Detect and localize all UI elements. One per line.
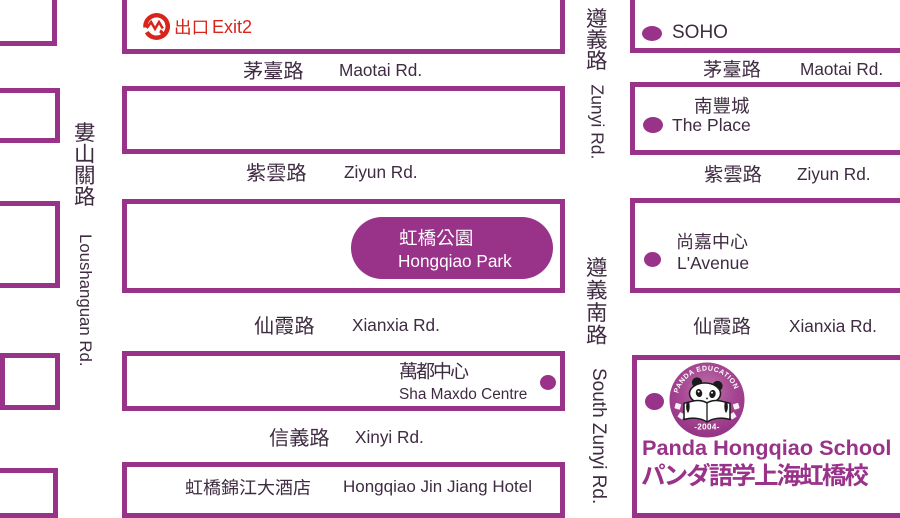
svg-text:-2004-: -2004- [694,423,720,432]
